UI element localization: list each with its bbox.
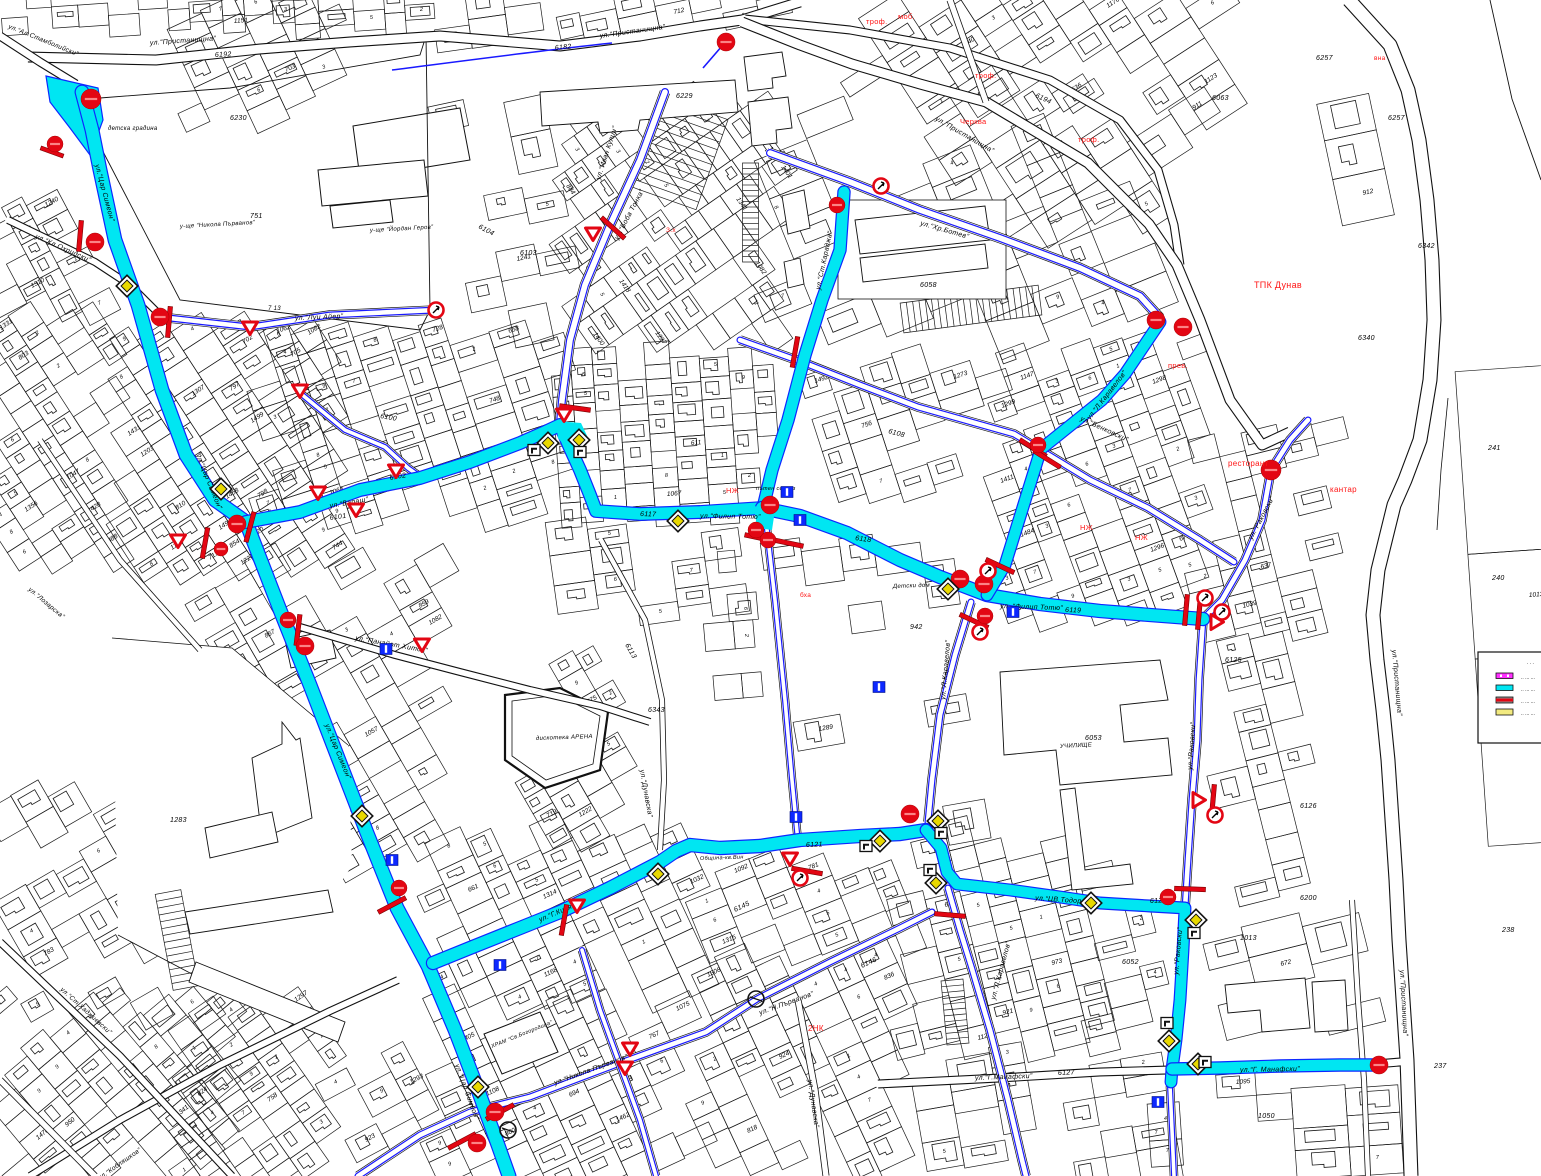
- svg-text:1050: 1050: [1258, 1113, 1275, 1120]
- svg-text:9: 9: [742, 375, 745, 381]
- svg-text:6126: 6126: [1300, 803, 1317, 810]
- svg-text:6340: 6340: [1358, 335, 1375, 342]
- svg-text:НЖ: НЖ: [1080, 523, 1093, 532]
- svg-text:6257: 6257: [1388, 115, 1406, 122]
- svg-text:.. ... ...: .. ... ...: [1521, 699, 1535, 705]
- svg-text:1095: 1095: [1236, 1078, 1251, 1086]
- svg-text:6182: 6182: [555, 44, 572, 52]
- svg-text:1013: 1013: [1240, 935, 1257, 942]
- svg-text:прев.: прев.: [1168, 361, 1188, 370]
- svg-text:6125: 6125: [1225, 657, 1242, 664]
- svg-text:240: 240: [1491, 575, 1505, 582]
- svg-text:4: 4: [1164, 1116, 1167, 1122]
- svg-text:троф.: троф.: [866, 17, 888, 26]
- svg-text:6200: 6200: [1300, 895, 1317, 902]
- svg-text:. . .: . . .: [1527, 660, 1534, 666]
- svg-text:6343: 6343: [648, 707, 665, 714]
- svg-text:7 13: 7 13: [268, 306, 281, 312]
- svg-text:ТПК Дунав: ТПК Дунав: [1254, 280, 1302, 290]
- svg-text:ул.“Филип Тотю”: ул.“Филип Тотю”: [699, 513, 761, 521]
- svg-text:троф.: троф.: [1078, 135, 1100, 144]
- svg-text:2: 2: [743, 633, 749, 638]
- svg-text:6192: 6192: [215, 51, 232, 59]
- svg-text:1: 1: [721, 453, 724, 459]
- svg-text:.. ... ...: .. ... ...: [1521, 687, 1535, 693]
- svg-text:6058: 6058: [920, 282, 937, 289]
- svg-text:1: 1: [614, 495, 617, 501]
- svg-text:2НК: 2НК: [808, 1024, 824, 1033]
- svg-text:6119: 6119: [1065, 607, 1082, 615]
- svg-text:6053: 6053: [1085, 735, 1102, 742]
- svg-text:238: 238: [1501, 927, 1515, 934]
- svg-text:ресторант: ресторант: [1228, 459, 1269, 468]
- svg-text:611: 611: [691, 439, 702, 447]
- svg-text:751: 751: [250, 213, 263, 220]
- svg-text:НЖ: НЖ: [726, 486, 739, 495]
- svg-text:6257: 6257: [1316, 55, 1334, 62]
- svg-text:троф.: троф.: [975, 71, 997, 80]
- svg-text:2: 2: [419, 7, 423, 13]
- svg-text:6103: 6103: [520, 250, 537, 257]
- svg-text:6127: 6127: [1058, 1069, 1076, 1077]
- svg-text:2: 2: [747, 473, 751, 479]
- svg-text:6342: 6342: [1418, 243, 1435, 250]
- svg-text:З.х: З.х: [666, 227, 676, 234]
- svg-text:241: 241: [1487, 445, 1501, 452]
- svg-text:детска градина: детска градина: [108, 126, 158, 132]
- svg-text:моб.: моб.: [898, 12, 915, 21]
- svg-text:.. ... ...: .. ... ...: [1521, 675, 1535, 681]
- svg-text:ул.“Г. Манафски”: ул.“Г. Манафски”: [1239, 1066, 1300, 1074]
- svg-text:6121: 6121: [806, 841, 823, 849]
- svg-text:Черква: Черква: [960, 117, 987, 126]
- svg-text:6117: 6117: [640, 511, 657, 519]
- svg-text:1283: 1283: [170, 817, 187, 824]
- svg-text:6052: 6052: [1122, 959, 1139, 966]
- svg-text:1013: 1013: [1529, 591, 1541, 599]
- svg-text:кантар: кантар: [1330, 485, 1357, 494]
- svg-text:6063: 6063: [1212, 95, 1229, 102]
- svg-text:бха: бха: [800, 591, 811, 599]
- svg-text:вна: вна: [1374, 55, 1386, 62]
- svg-text:942: 942: [910, 624, 923, 631]
- svg-text:6229: 6229: [676, 93, 693, 100]
- svg-text:НЖ: НЖ: [1135, 533, 1148, 542]
- svg-text:.. ... ...: .. ... ...: [1521, 711, 1535, 717]
- svg-text:6230: 6230: [230, 115, 247, 122]
- svg-text:237: 237: [1433, 1063, 1447, 1070]
